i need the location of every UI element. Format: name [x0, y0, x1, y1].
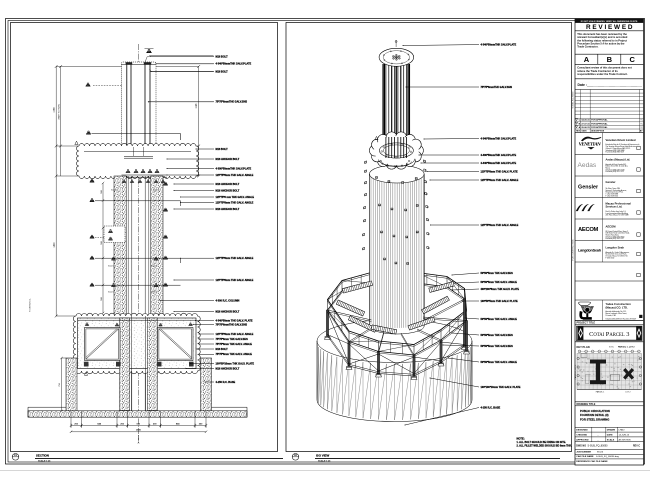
svg-text:AS SHOWN: AS SHOWN: [619, 438, 631, 441]
svg-text:F 2833 1532: F 2833 1532: [606, 257, 615, 259]
svg-text:100*50*5mm THK GALV. PLATE: 100*50*5mm THK GALV. PLATE: [481, 300, 519, 303]
svg-text:S-SUB_FQ_80090: S-SUB_FQ_80090: [588, 445, 609, 448]
svg-text:Services Ltd.: Services Ltd.: [606, 205, 623, 209]
svg-text:responsibilities under the: responsibilities under the Trade Contrac…: [577, 72, 628, 76]
svg-text:75*75*6mmTHK GALV.SHS: 75*75*6mmTHK GALV.SHS: [481, 86, 513, 89]
svg-text:27-07-15: 27-07-15: [581, 123, 590, 125]
svg-text:05-06-15: 05-06-15: [581, 127, 590, 129]
svg-text:R E V I E W E D: R E V I E W E D: [586, 24, 633, 31]
svg-text:2. ALL FILLET WELDED SHOULD BE: 2. ALL FILLET WELDED SHOULD BE 6mm THK.: [517, 445, 573, 448]
svg-text:CHECKED: CHECKED: [576, 435, 587, 437]
svg-text:(VARY TO SUIT): (VARY TO SUIT): [57, 104, 60, 120]
svg-text:JOB NUMBER: JOB NUMBER: [576, 452, 591, 454]
svg-text:100*50*10mm THK GALV. PLATE: 100*50*10mm THK GALV. PLATE: [216, 362, 255, 365]
svg-text:C: C: [629, 55, 635, 64]
svg-text:75*75*6mmTHK GALV.SHS: 75*75*6mmTHK GALV.SHS: [216, 101, 248, 104]
svg-text:FOUNTAIN CL: FOUNTAIN CL: [29, 297, 32, 312]
svg-text:M16 BOLT: M16 BOLT: [216, 148, 229, 151]
svg-text:125*75*8mm THK GALV. ANGLE: 125*75*8mm THK GALV. ANGLE: [481, 224, 519, 227]
svg-text:FOUNTAIN DETAIL (II): FOUNTAIN DETAIL (II): [580, 413, 609, 417]
svg-text:Facsimile:(852) 3922 9797: Facsimile:(852) 3922 9797: [606, 238, 624, 240]
svg-text:4-300*50mmTHK GALV.PLATE: 4-300*50mmTHK GALV.PLATE: [481, 154, 517, 157]
svg-text:4-340*50mmTHK GALV.PLATE: 4-340*50mmTHK GALV.PLATE: [481, 162, 517, 165]
svg-text:SECTION: SECTION: [36, 453, 49, 457]
svg-text:LangdonSeah: LangdonSeah: [578, 247, 602, 252]
svg-text:VENETIAN: VENETIAN: [578, 143, 601, 148]
svg-text:No.263, Edf. China Civil Plaza: No.263, Edf. China Civil Plaza,: [606, 254, 628, 256]
svg-text:S-SUB_FQ_80090: S-SUB_FQ_80090: [572, 91, 574, 109]
svg-text:125*75*8mm THK GALV. ANGLE: 125*75*8mm THK GALV. ANGLE: [216, 333, 254, 336]
svg-text:M16 BOLT: M16 BOLT: [216, 55, 229, 58]
svg-text:Gensler: Gensler: [578, 184, 599, 190]
svg-text:4-340*50mm THK GALV. PLATE: 4-340*50mm THK GALV. PLATE: [216, 319, 253, 322]
svg-text:FOR APPROVAL: FOR APPROVAL: [591, 122, 608, 125]
svg-text:4-300 R.C. COLUMN: 4-300 R.C. COLUMN: [216, 299, 240, 302]
svg-text:2590: 2590: [136, 430, 142, 432]
svg-text:Macau: Macau: [606, 168, 611, 170]
svg-text:400*200*8mm THK GALV. PLATE: 400*200*8mm THK GALV. PLATE: [481, 288, 520, 291]
svg-text:M16 ANCHOR BOLT: M16 ANCHOR BOLT: [216, 183, 240, 186]
svg-text:M16 BOLT: M16 BOLT: [216, 348, 229, 351]
svg-text:125*75*8mm THK GALV. ANGLE: 125*75*8mm THK GALV. ANGLE: [216, 279, 254, 282]
svg-text:Trade Contractor.: Trade Contractor.: [577, 45, 598, 49]
svg-text:M16 ANCHOR BOLT: M16 ANCHOR BOLT: [216, 158, 240, 161]
svg-text:PARCEL 1, LOT 2: PARCEL 1, LOT 2: [618, 346, 635, 349]
svg-text:100*100*10mm THK GALV. PLATE: 100*100*10mm THK GALV. PLATE: [481, 386, 521, 389]
svg-text:Gensler: Gensler: [606, 180, 616, 184]
svg-text:4-250 R.C. BASE: 4-250 R.C. BASE: [216, 381, 236, 384]
svg-text:KEY PLAN: KEY PLAN: [577, 345, 590, 349]
svg-text:4-340*50mmTHK GALV.PLATE: 4-340*50mmTHK GALV.PLATE: [481, 44, 517, 47]
svg-text:N.T.S.: N.T.S.: [609, 347, 614, 349]
svg-text:125*75*8mm THK GALV. ANGLE: 125*75*8mm THK GALV. ANGLE: [216, 174, 254, 177]
svg-text:F +852 2539 0555: F +852 2539 0555: [606, 195, 619, 197]
svg-text:Telephone:(853) 2882 8888: Telephone:(853) 2882 8888: [606, 150, 625, 152]
svg-text:04-09-15: 04-09-15: [581, 119, 590, 122]
svg-text:DATE: DATE: [582, 130, 588, 133]
svg-text:75*75*6mm THK GALV. ANGLE: 75*75*6mm THK GALV. ANGLE: [216, 343, 253, 346]
svg-text:M16 ANCHOR BOLT: M16 ANCHOR BOLT: [216, 367, 240, 370]
svg-text:75*75*6mm THK GALV.SHS: 75*75*6mm THK GALV.SHS: [216, 338, 249, 341]
svg-text:Yadea Construction: Yadea Construction: [606, 302, 632, 306]
svg-text:50*50*5mm THK GALV. ANGLE: 50*50*5mm THK GALV. ANGLE: [481, 281, 518, 284]
svg-text:4-340*50mmTHK GALV.PLATE: 4-340*50mmTHK GALV.PLATE: [216, 63, 252, 66]
svg-text:Aedas (Macau) Ltd.: Aedas (Macau) Ltd.: [606, 158, 631, 162]
svg-text:REFERENCE CAD FILE NAME: REFERENCE CAD FILE NAME: [576, 460, 608, 463]
svg-text:PUBLIC CIRCULATION: PUBLIC CIRCULATION: [580, 409, 610, 413]
svg-text:M16 ANCHOR BOLT: M16 ANCHOR BOLT: [216, 208, 240, 211]
svg-text:Date :: Date :: [578, 83, 587, 87]
svg-text:125*75*8mm THK GALV. ANGLE: 125*75*8mm THK GALV. ANGLE: [216, 201, 254, 204]
svg-text:91526: 91526: [597, 452, 604, 454]
svg-text:50*50*5mm THK GALV.SHS: 50*50*5mm THK GALV.SHS: [481, 345, 514, 348]
svg-text:DATE: DATE: [607, 434, 613, 437]
svg-text:1788: 1788: [54, 107, 56, 113]
svg-text:PROJECT TITLE: PROJECT TITLE: [577, 322, 596, 325]
svg-text:AECOM: AECOM: [578, 227, 599, 233]
svg-text:REV C: REV C: [633, 446, 640, 448]
svg-text:NOTE:: NOTE:: [517, 437, 525, 441]
svg-text:1196: 1196: [196, 103, 198, 109]
svg-text:DESIGNED: DESIGNED: [576, 430, 588, 432]
svg-text:M16 BOLT: M16 BOLT: [216, 70, 229, 73]
svg-text:COTAI PARCEL 3: COTAI PARCEL 3: [589, 331, 629, 338]
svg-text:DWG NO: DWG NO: [576, 446, 586, 448]
svg-text:75*75*6mm THK GALV. ANGLE: 75*75*6mm THK GALV. ANGLE: [216, 353, 253, 356]
svg-text:(Macau) CO. LTD.: (Macau) CO. LTD.: [606, 305, 628, 309]
svg-text:M16 ANCHOR BOLT: M16 ANCHOR BOLT: [216, 310, 240, 313]
svg-text:AECOM: AECOM: [606, 225, 617, 229]
svg-text:Telephone:(853) 2871 5033: Telephone:(853) 2871 5033: [606, 169, 625, 171]
svg-text:50*50*5mm THK GALV.SHS: 50*50*5mm THK GALV.SHS: [481, 334, 514, 337]
svg-text:SCALE: SCALE: [607, 438, 615, 441]
svg-text:PARCEL 1: PARCEL 1: [596, 391, 605, 394]
svg-text:1400: 1400: [54, 242, 56, 248]
svg-text:ISO VIEW: ISO VIEW: [316, 453, 329, 457]
svg-text:125*75*8mm THK GALV. ANGLE: 125*75*8mm THK GALV. ANGLE: [216, 257, 254, 260]
svg-text:4-340*50mmTHK GALV.PLATE: 4-340*50mmTHK GALV.PLATE: [481, 137, 517, 140]
svg-text:14-JUN-15: 14-JUN-15: [619, 435, 630, 437]
svg-text:SCALE 1:25: SCALE 1:25: [38, 459, 51, 462]
svg-text:50*50*5mm THK GALV. ANGLE: 50*50*5mm THK GALV. ANGLE: [481, 318, 518, 321]
svg-text:M16 ANCHOR BOLT: M16 ANCHOR BOLT: [216, 189, 240, 192]
svg-text:Facsimile:(853) 2871 5122: Facsimile:(853) 2871 5122: [606, 171, 624, 173]
svg-text:Aedas: Aedas: [578, 162, 597, 169]
svg-text:LOT 2: LOT 2: [626, 392, 631, 394]
svg-text:A: A: [138, 442, 140, 445]
svg-text:A: A: [584, 55, 590, 64]
svg-text:Telephone:(852) 3922 9000: Telephone:(852) 3922 9000: [606, 236, 625, 238]
svg-text:Facsimile:(853) 2883 9029: Facsimile:(853) 2883 9029: [606, 152, 624, 154]
svg-text:S-SUB_FQ_80090.dwg: S-SUB_FQ_80090.dwg: [596, 456, 620, 458]
svg-text:FOR APPROVAL: FOR APPROVAL: [591, 126, 608, 129]
svg-text:Langdon Seah: Langdon Seah: [606, 246, 625, 250]
svg-text:FOR APPROVAL: FOR APPROVAL: [591, 119, 608, 122]
svg-text:SCALE 1:25: SCALE 1:25: [318, 459, 331, 462]
svg-text:FOR CONSTRUCTION: FOR CONSTRUCTION: [572, 239, 574, 260]
svg-text:125*75*8 mm THK GALV. ANGLE: 125*75*8 mm THK GALV. ANGLE: [216, 196, 255, 199]
svg-text:Venetian Orient Limited: Venetian Orient Limited: [606, 138, 636, 142]
svg-text:PARCEL 1, LOT 2: PARCEL 1, LOT 2: [574, 365, 577, 379]
svg-text:DRAWN: DRAWN: [607, 429, 616, 432]
svg-text:50*50*5mm THK GALV.SHS: 50*50*5mm THK GALV.SHS: [481, 272, 514, 275]
svg-text:125*75*8mm THK GALV. ANGLE: 125*75*8mm THK GALV. ANGLE: [481, 179, 519, 182]
svg-text:B: B: [607, 55, 613, 64]
svg-text:75*75*6mmTHK GALV.SHS: 75*75*6mmTHK GALV.SHS: [216, 323, 248, 326]
svg-text:50*50*5mm THK GALV. ANGLE: 50*50*5mm THK GALV. ANGLE: [481, 361, 518, 364]
svg-text:4-300*50mmTHK GALV.PLATE: 4-300*50mmTHK GALV.PLATE: [216, 167, 252, 170]
svg-text:APPROVED: APPROVED: [576, 438, 589, 441]
svg-text:T +852 2539 0888: T +852 2539 0888: [606, 194, 619, 196]
svg-text:FOR STEEL DRAWING: FOR STEEL DRAWING: [580, 417, 609, 421]
svg-text:4-250 R.C. BASE: 4-250 R.C. BASE: [481, 406, 501, 409]
svg-text:125*75*8mm THK GALV. PLATE: 125*75*8mm THK GALV. PLATE: [481, 170, 519, 173]
svg-text:CAD FILE NAME: CAD FILE NAME: [576, 455, 594, 458]
svg-text:LHAO: LHAO: [619, 429, 625, 432]
svg-text:Telephone:(853) 2878 6272 Fac: Telephone:(853) 2878 6272 Facsimile: 287…: [606, 318, 637, 320]
svg-text:DRAWING TITLE: DRAWING TITLE: [577, 403, 596, 406]
